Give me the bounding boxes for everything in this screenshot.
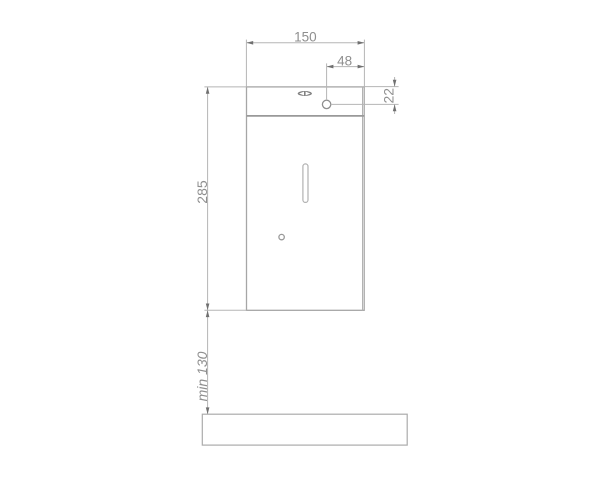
svg-text:min 130: min 130 (194, 351, 210, 401)
svg-text:48: 48 (337, 53, 352, 68)
svg-text:285: 285 (194, 180, 210, 204)
svg-text:150: 150 (294, 29, 317, 44)
svg-text:22: 22 (381, 88, 397, 104)
